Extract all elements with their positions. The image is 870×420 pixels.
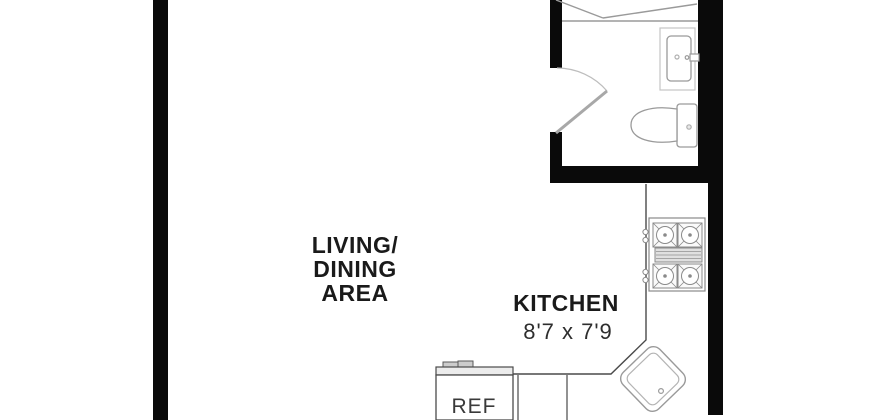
base-cabinet-dividers [518,375,567,420]
closet-icon [556,0,698,21]
bathroom-left-wall-upper [550,0,562,68]
living-dining-label: LIVING/ DINING AREA [255,233,455,305]
kitchen-label: KITCHEN [466,291,666,315]
stove-grill-band [655,248,702,262]
refrigerator-label: REF [424,395,524,419]
kitchen-sink-icon [617,343,689,415]
bathroom-right-wall [698,0,723,183]
living-dining-label-line3: AREA [255,281,455,305]
door-swing-icon [556,68,607,133]
kitchen-right-wall [708,183,723,415]
floor-plan: LIVING/ DINING AREA KITCHEN 8'7 x 7'9 RE… [0,0,870,420]
toilet-icon [631,104,697,147]
stove-icon [643,218,705,291]
floor-plan-drawing [0,0,870,420]
living-dining-label-line2: DINING [255,257,455,281]
vanity-sink-icon [660,28,699,90]
bathroom-bottom-wall [550,166,723,183]
kitchen-dimensions-label: 8'7 x 7'9 [468,319,668,345]
left-wall [153,0,168,420]
walls [153,0,723,420]
living-dining-label-line1: LIVING/ [255,233,455,257]
kitchen-counter-line [436,184,646,374]
